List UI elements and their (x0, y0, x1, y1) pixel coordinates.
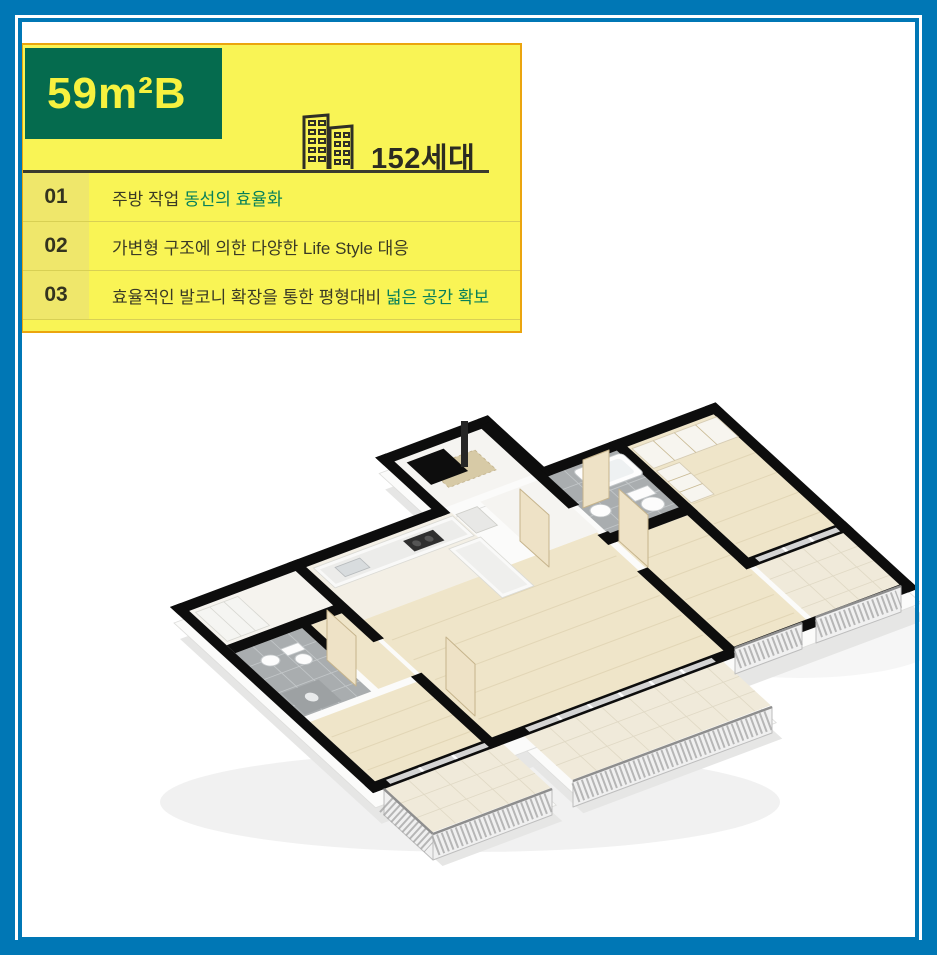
feature-row-1: 01 주방 작업 동선의 효율화 (23, 173, 520, 222)
unit-type-label: 59m²B (47, 69, 187, 118)
door-leaf (583, 450, 609, 508)
feature-list: 01 주방 작업 동선의 효율화 02 가변형 구조에 의한 다양한 Life … (23, 173, 520, 320)
plan-layer (114, 372, 920, 837)
page: 59m²B 152세대 01 주방 (0, 0, 937, 955)
feature-number: 03 (23, 271, 89, 319)
feature-row-3: 03 효율적인 발코니 확장을 통한 평형대비 넓은 공간 확보 (23, 271, 520, 320)
feature-accent: 동선의 효율화 (184, 185, 283, 210)
feature-number: 01 (23, 173, 89, 221)
info-panel: 59m²B 152세대 01 주방 (21, 43, 522, 333)
feature-row-2: 02 가변형 구조에 의한 다양한 Life Style 대응 (23, 222, 520, 271)
feature-number: 02 (23, 222, 89, 270)
feature-accent: 넓은 공간 확보 (386, 283, 489, 308)
floorplan-render (40, 372, 920, 932)
feature-plain: 주방 작업 (112, 185, 184, 210)
feature-text: 효율적인 발코니 확장을 통한 평형대비 넓은 공간 확보 (89, 271, 520, 319)
floorplan-3d-svg (40, 372, 920, 932)
buildings-icon (290, 113, 362, 173)
feature-text: 가변형 구조에 의한 다양한 Life Style 대응 (89, 222, 520, 270)
feature-text: 주방 작업 동선의 효율화 (89, 173, 520, 221)
vent-pole (461, 421, 468, 467)
feature-plain: 효율적인 발코니 확장을 통한 평형대비 (112, 283, 386, 308)
feature-plain: 가변형 구조에 의한 다양한 Life Style 대응 (112, 234, 409, 259)
unit-type-badge: 59m²B (25, 48, 222, 139)
